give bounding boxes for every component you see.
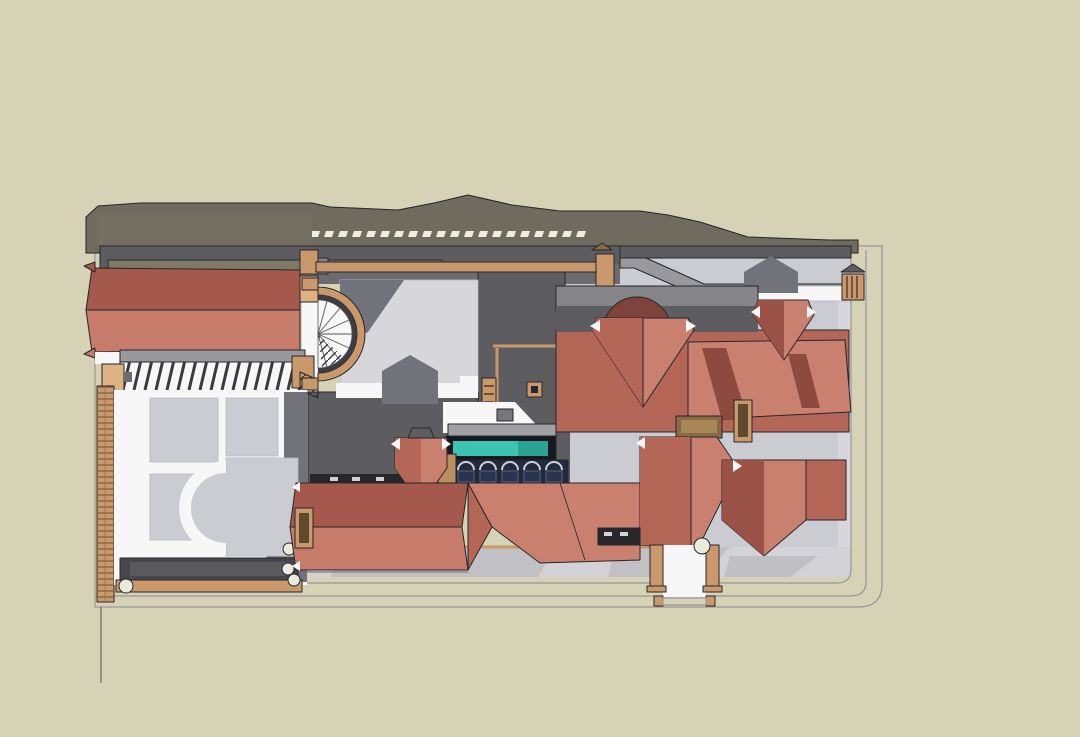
gate-post-small (706, 596, 715, 606)
pergola-top-strip (120, 350, 305, 362)
eave-dash (376, 477, 384, 481)
finial-sphere (119, 579, 133, 593)
arcade-window (480, 471, 496, 482)
stair-bottom-post (302, 378, 318, 390)
garden-panel-nw (150, 398, 218, 462)
west-gable-roof-south-slope (86, 310, 300, 352)
pergola-slats (120, 362, 305, 392)
finial-sphere (282, 563, 294, 575)
garden-semicircle-panel (191, 473, 261, 543)
arcade-windows (458, 471, 562, 482)
corner-post-upper (300, 250, 318, 274)
rear-roof-band-east (620, 246, 851, 258)
south-gate (647, 538, 722, 606)
parterre-garden (97, 386, 307, 602)
gate-pillar-foot (647, 586, 666, 592)
site-plan-render (0, 0, 1080, 737)
garden-south-tan-frame (116, 580, 302, 592)
pergola-post-bracket (124, 372, 132, 382)
gate-pillar-west (650, 545, 663, 590)
east-gate-body (842, 274, 864, 300)
arcade-window (502, 471, 518, 482)
stair-top-post (302, 278, 318, 290)
porch-dash (604, 532, 612, 536)
lap-pool-deep-end (518, 441, 548, 456)
skylight (497, 409, 513, 421)
ridge-tile-row (312, 230, 588, 242)
arcade-window (524, 471, 540, 482)
small-hip-dormer-cap (408, 428, 434, 438)
pergola-beam (316, 262, 612, 272)
chimney-flat-top (681, 420, 717, 433)
west-gable-roof-north-slope (86, 268, 300, 310)
finial-sphere (694, 538, 710, 554)
gate-post-small (654, 596, 663, 606)
eave-dash (352, 477, 360, 481)
gate-pillar-foot (703, 586, 722, 592)
eave-dash (330, 477, 338, 481)
model-viewport (0, 0, 1080, 737)
finial-sphere (288, 574, 300, 586)
east-gate (841, 264, 865, 300)
garden-south-wall-inner (130, 562, 288, 576)
garden-panel-ne (226, 398, 278, 456)
south-house-chimney-core (299, 513, 309, 543)
chimney-small-core (531, 386, 538, 393)
south-house-north-slope (290, 483, 468, 527)
southeast-hip-west-face (640, 437, 691, 548)
far-east-roof-extension (806, 460, 846, 520)
south-house-south-slope (290, 527, 468, 570)
neighbor-roof-facet (98, 214, 312, 250)
porch-dash (620, 532, 628, 536)
arcade-window (546, 471, 562, 482)
chimney-tall-core (738, 404, 748, 437)
porch-dark-band (598, 528, 640, 545)
arcade-window (458, 471, 474, 482)
trellis-texture (97, 386, 114, 602)
